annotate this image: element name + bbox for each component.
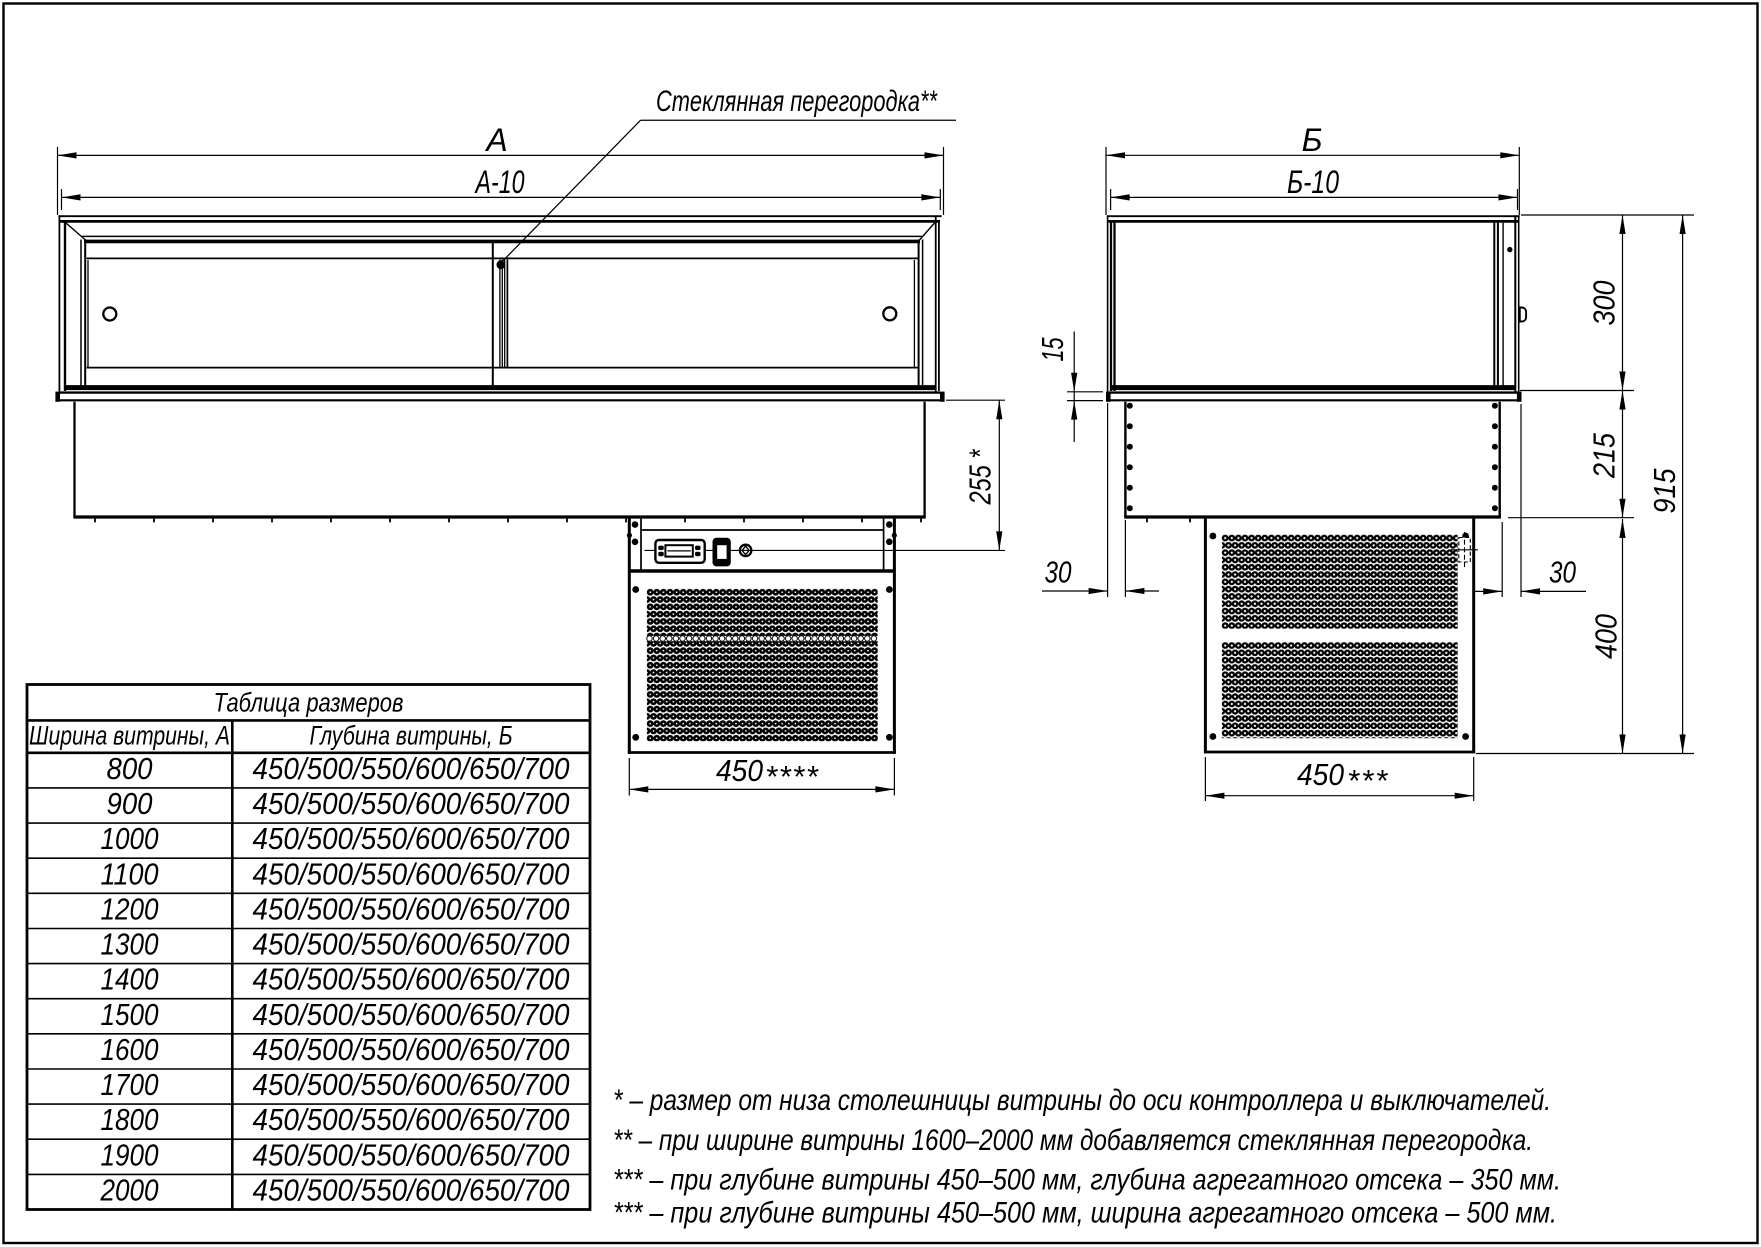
svg-text:** – при ширине витрины 1600–2: ** – при ширине витрины 1600–2000 мм доб… <box>613 1124 1533 1157</box>
svg-text:450/500/550/600/650/700: 450/500/550/600/650/700 <box>253 927 570 962</box>
svg-text:* – размер от низа столешницы: * – размер от низа столешницы витрины до… <box>613 1084 1551 1117</box>
svg-text:900: 900 <box>107 786 153 821</box>
svg-text:450: 450 <box>716 753 763 788</box>
svg-text:Б: Б <box>1302 122 1323 158</box>
svg-text:450/500/550/600/650/700: 450/500/550/600/650/700 <box>253 786 570 821</box>
svg-text:1100: 1100 <box>101 856 159 891</box>
svg-text:450/500/550/600/650/700: 450/500/550/600/650/700 <box>253 891 570 926</box>
svg-text:*** – при глубине витрины 450–: *** – при глубине витрины 450–500 мм, гл… <box>613 1164 1561 1197</box>
svg-text:450/500/550/600/650/700: 450/500/550/600/650/700 <box>253 1137 570 1172</box>
svg-text:450: 450 <box>1297 757 1344 792</box>
svg-text:1900: 1900 <box>101 1137 159 1172</box>
svg-text:1400: 1400 <box>101 962 159 997</box>
svg-text:400: 400 <box>1589 614 1624 659</box>
svg-text:255 *: 255 * <box>963 449 998 505</box>
svg-text:Ширина витрины, А: Ширина витрины, А <box>29 721 230 751</box>
svg-text:Таблица размеров: Таблица размеров <box>214 688 404 718</box>
svg-text:1800: 1800 <box>101 1102 159 1137</box>
svg-text:800: 800 <box>107 751 153 786</box>
svg-text:***: *** <box>1347 763 1389 798</box>
svg-text:450/500/550/600/650/700: 450/500/550/600/650/700 <box>253 1067 570 1102</box>
svg-text:1200: 1200 <box>101 891 159 926</box>
svg-text:300: 300 <box>1586 281 1621 326</box>
svg-text:*** – при глубине витрины 450–: *** – при глубине витрины 450–500 мм, ши… <box>613 1197 1557 1230</box>
svg-text:Стеклянная перегородка**: Стеклянная перегородка** <box>656 85 938 118</box>
svg-text:1600: 1600 <box>101 1032 159 1067</box>
svg-text:А: А <box>484 122 507 158</box>
svg-text:2000: 2000 <box>100 1172 159 1207</box>
svg-text:915: 915 <box>1647 468 1682 514</box>
svg-text:450/500/550/600/650/700: 450/500/550/600/650/700 <box>253 751 570 786</box>
svg-text:30: 30 <box>1549 555 1576 590</box>
svg-text:Б-10: Б-10 <box>1287 164 1339 200</box>
svg-text:450/500/550/600/650/700: 450/500/550/600/650/700 <box>253 1102 570 1137</box>
svg-text:450/500/550/600/650/700: 450/500/550/600/650/700 <box>253 1172 570 1207</box>
svg-text:1300: 1300 <box>101 927 159 962</box>
svg-text:1700: 1700 <box>101 1067 159 1102</box>
svg-text:1500: 1500 <box>101 997 159 1032</box>
svg-text:****: **** <box>765 759 819 794</box>
svg-text:Глубина витрины, Б: Глубина витрины, Б <box>310 721 513 751</box>
svg-text:А-10: А-10 <box>474 164 525 200</box>
svg-text:450/500/550/600/650/700: 450/500/550/600/650/700 <box>253 1032 570 1067</box>
svg-text:1000: 1000 <box>101 821 159 856</box>
svg-text:450/500/550/600/650/700: 450/500/550/600/650/700 <box>253 962 570 997</box>
svg-text:450/500/550/600/650/700: 450/500/550/600/650/700 <box>253 997 570 1032</box>
svg-text:450/500/550/600/650/700: 450/500/550/600/650/700 <box>253 856 570 891</box>
svg-text:30: 30 <box>1045 555 1072 590</box>
svg-text:215: 215 <box>1586 432 1621 479</box>
svg-text:15: 15 <box>1035 337 1070 362</box>
svg-text:450/500/550/600/650/700: 450/500/550/600/650/700 <box>253 821 570 856</box>
